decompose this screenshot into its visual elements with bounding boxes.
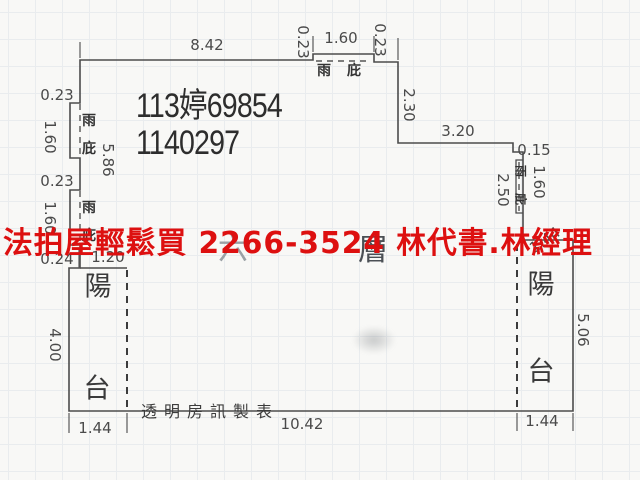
- dim-left-canopy-upper-offset: 0.23: [40, 86, 73, 104]
- case-numbers: 113婷69854 1140297: [136, 88, 282, 162]
- balcony-right-label-yang: 陽: [528, 263, 555, 302]
- dim-left-wall-inner: 5.86: [99, 143, 117, 176]
- canopy-top-label-rain: 雨: [317, 60, 331, 80]
- scan-smudge: [352, 326, 396, 354]
- dim-canopy-top-left-offset: 0.23: [294, 25, 312, 58]
- dim-balcony-left-height: 4.00: [46, 328, 64, 361]
- case-number-line1: 113婷69854: [136, 88, 282, 125]
- dim-right-step-width: 3.20: [441, 122, 474, 140]
- canopy-top-label-shelter: 庇: [347, 60, 361, 80]
- canopy-left-upper-label-shelter: 庇: [82, 138, 96, 158]
- dim-bottom-width: 10.42: [281, 415, 324, 433]
- dim-balcony-right-height: 5.06: [574, 313, 592, 346]
- balcony-right-label-tai: 台: [528, 350, 555, 389]
- balcony-dashed-lines: [127, 244, 517, 409]
- floorplan-page: 8.42 0.23 1.60 0.23 2.30 3.20 0.15 2.50 …: [0, 0, 640, 480]
- dim-balcony-left-bottom-width: 1.44: [78, 419, 111, 437]
- publisher-credit: 透明房訊製表: [141, 398, 279, 422]
- canopy-left-upper-label-rain: 雨: [82, 110, 96, 130]
- balcony-left-label-yang: 陽: [85, 265, 112, 304]
- ad-banner-text: 法拍屋輕鬆買 2266-3524 林代書.林經理: [3, 218, 593, 262]
- dim-canopy-right-length: 1.60: [530, 165, 548, 198]
- dim-right-step-offset: 0.15: [517, 141, 550, 159]
- balcony-left-label-tai: 台: [84, 367, 111, 406]
- dim-right-upper-depth: 2.30: [400, 88, 418, 121]
- case-number-line2: 1140297: [136, 125, 282, 162]
- dim-canopy-right-span: 2.50: [494, 173, 512, 206]
- dim-canopy-top-right-offset: 0.23: [371, 23, 389, 56]
- canopy-left-lower-label-rain: 雨: [82, 197, 96, 217]
- dim-left-canopy-upper-length: 1.60: [41, 120, 59, 153]
- dim-left-canopy-lower-offset: 0.23: [40, 172, 73, 190]
- dim-balcony-right-bottom-width: 1.44: [525, 412, 558, 430]
- canopy-right-label-rain: 雨: [513, 165, 530, 177]
- canopy-right-label-shelter: 庇: [513, 193, 530, 205]
- dim-top-width: 8.42: [190, 36, 223, 54]
- dim-canopy-top-width: 1.60: [324, 29, 357, 47]
